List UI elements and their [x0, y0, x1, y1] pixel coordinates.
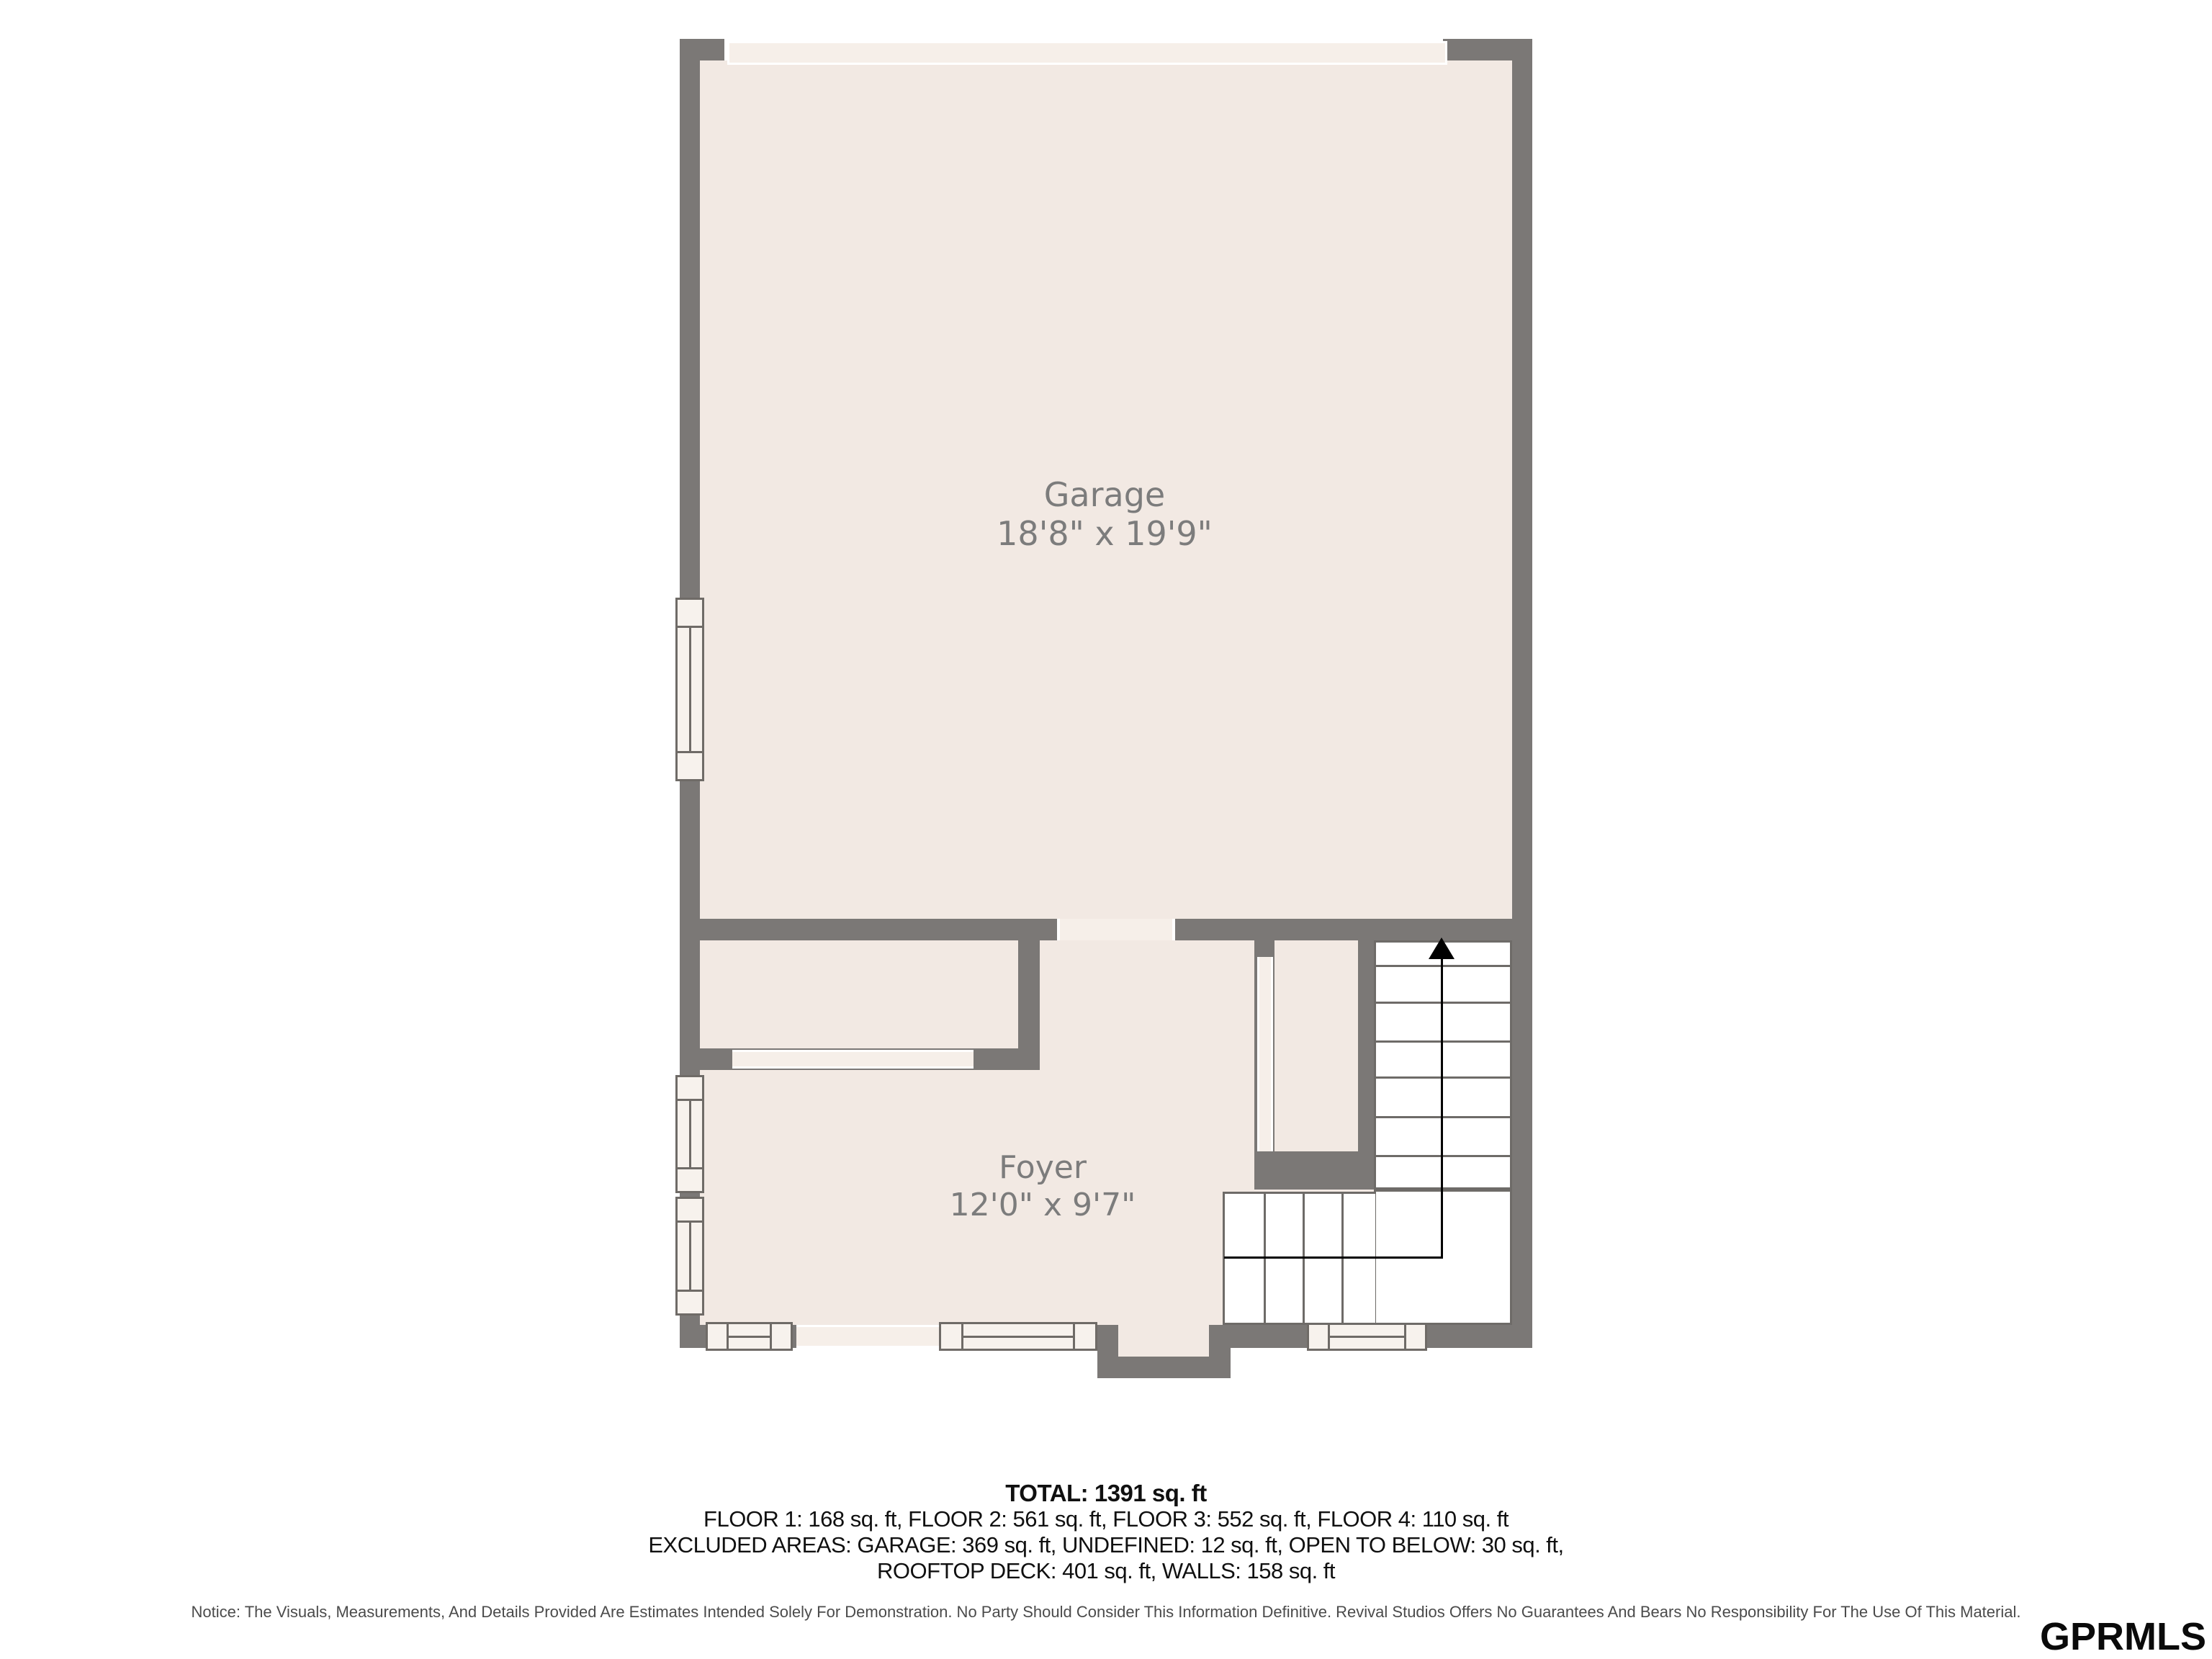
closet-door-opening [1257, 957, 1273, 1151]
window-foyer-bottom-2 [939, 1322, 1097, 1351]
window-garage-left [675, 598, 704, 781]
wall-alcove-right [1209, 1325, 1231, 1378]
stairs-upper-flight [1374, 940, 1512, 1190]
stairs-direction-line-vertical [1441, 958, 1443, 1259]
foyer-room-label: Foyer 12'0" x 9'7" [827, 1149, 1259, 1224]
window-foyer-left-lower [675, 1197, 704, 1316]
stair-tread-line [1376, 1116, 1510, 1118]
window-foyer-left-upper [675, 1075, 704, 1193]
window-stairs-bottom [1307, 1322, 1427, 1351]
stairs-up-arrow-icon [1429, 938, 1455, 959]
entry-alcove [1118, 1325, 1209, 1357]
stair-tread-line [1376, 1002, 1510, 1004]
floor-areas-line: FLOOR 1: 168 sq. ft, FLOOR 2: 561 sq. ft… [0, 1506, 2212, 1532]
room-name: Garage [889, 475, 1321, 514]
floor-plan: Garage 18'8" x 19'9" Foyer 12'0" x 9'7" [0, 0, 2212, 1659]
wall-closet-bottom [1254, 1151, 1375, 1190]
stair-tread-line [1376, 965, 1510, 967]
stairs-direction-line-horizontal [1224, 1256, 1443, 1259]
divider-door-opening [1057, 919, 1175, 940]
room-dimensions: 18'8" x 19'9" [889, 514, 1321, 553]
stair-tread-line [1376, 1155, 1510, 1157]
wall-right [1512, 39, 1532, 1348]
total-area-line: TOTAL: 1391 sq. ft [0, 1480, 2212, 1506]
room-dimensions: 12'0" x 9'7" [827, 1187, 1259, 1224]
room-name: Foyer [827, 1149, 1259, 1187]
garage-room-label: Garage 18'8" x 19'9" [889, 475, 1321, 554]
foyer-bottom-opening [796, 1325, 939, 1348]
area-summary: TOTAL: 1391 sq. ft FLOOR 1: 168 sq. ft, … [0, 1480, 2212, 1584]
stair-tread-line [1376, 1040, 1510, 1043]
excluded-areas-line-2: ROOFTOP DECK: 401 sq. ft, WALLS: 158 sq.… [0, 1558, 2212, 1584]
storage-opening [732, 1050, 974, 1069]
stair-tread-line [1376, 1076, 1510, 1079]
excluded-areas-line-1: EXCLUDED AREAS: GARAGE: 369 sq. ft, UNDE… [0, 1532, 2212, 1558]
garage-door-opening [727, 41, 1447, 65]
mls-watermark: GPRMLS [2040, 1614, 2206, 1659]
notice-text: Notice: The Visuals, Measurements, And D… [0, 1603, 2212, 1622]
window-foyer-bottom-1 [706, 1322, 793, 1351]
